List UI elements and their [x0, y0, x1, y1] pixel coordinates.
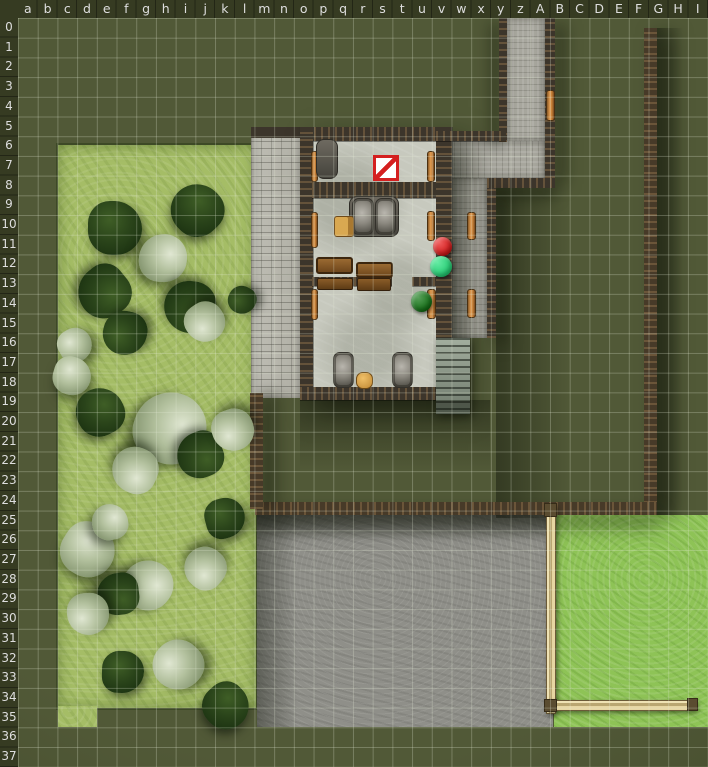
col-header-w: w: [451, 0, 471, 18]
row-header-27: 27: [0, 550, 18, 570]
col-header-e: e: [97, 0, 117, 18]
row-header-36: 36: [0, 727, 18, 747]
barrel: [375, 198, 396, 235]
fence-post: [544, 699, 557, 712]
row-header-12: 12: [0, 254, 18, 274]
col-header-p: p: [314, 0, 334, 18]
vtt-map-stage: abcdefghijklmnopqrstuvwxyzABCDEFGHI 0123…: [0, 0, 708, 767]
col-header-x: x: [471, 0, 491, 18]
map-canvas[interactable]: [18, 18, 708, 767]
column-header-bar: abcdefghijklmnopqrstuvwxyzABCDEFGHI: [18, 0, 708, 18]
paddock-fence-west: [546, 505, 556, 714]
row-header-0: 0: [0, 18, 18, 38]
tbench: [357, 278, 391, 291]
row-header-24: 24: [0, 491, 18, 511]
col-header-j: j: [195, 0, 215, 18]
row-header-17: 17: [0, 353, 18, 373]
col-header-A: A: [530, 0, 550, 18]
col-header-n: n: [274, 0, 294, 18]
row-header-18: 18: [0, 373, 18, 393]
row-header-5: 5: [0, 117, 18, 137]
west-boundary-wall: [250, 393, 263, 509]
north-path: [507, 18, 545, 141]
row-header-23: 23: [0, 471, 18, 491]
table: [316, 257, 353, 274]
col-header-t: t: [392, 0, 412, 18]
row-header-22: 22: [0, 451, 18, 471]
row-header-37: 37: [0, 747, 18, 767]
col-header-H: H: [668, 0, 688, 18]
row-header-31: 31: [0, 629, 18, 649]
bench: [467, 212, 476, 240]
stone-stairs: [436, 338, 470, 414]
row-header-21: 21: [0, 432, 18, 452]
row-header-35: 35: [0, 708, 18, 728]
col-header-d: d: [77, 0, 97, 18]
fence-post: [687, 698, 698, 711]
row-header-33: 33: [0, 668, 18, 688]
row-header-bar: 0123456789101112131415161718192021222324…: [0, 18, 18, 767]
row-header-25: 25: [0, 511, 18, 531]
east-boundary-wall: [644, 28, 657, 510]
barrel: [352, 198, 374, 235]
red-round-token[interactable]: [433, 237, 452, 256]
row-header-2: 2: [0, 57, 18, 77]
chair: [334, 216, 354, 237]
grass-field-notch: [58, 706, 97, 727]
row-header-14: 14: [0, 294, 18, 314]
col-header-h: h: [156, 0, 176, 18]
link-path: [436, 141, 545, 178]
row-header-34: 34: [0, 688, 18, 708]
green-round-token[interactable]: [430, 256, 452, 277]
barrel: [333, 352, 354, 388]
row-header-26: 26: [0, 530, 18, 550]
col-header-o: o: [294, 0, 314, 18]
col-header-l: l: [235, 0, 255, 18]
row-header-6: 6: [0, 136, 18, 156]
hazard-marker-token[interactable]: [373, 155, 399, 181]
row-header-29: 29: [0, 589, 18, 609]
counter: [316, 139, 338, 179]
col-header-b: b: [38, 0, 58, 18]
col-header-G: G: [649, 0, 669, 18]
bench: [546, 90, 555, 121]
row-header-4: 4: [0, 97, 18, 117]
row-header-8: 8: [0, 176, 18, 196]
path-wall-north: [436, 131, 506, 141]
table: [356, 262, 393, 278]
row-header-10: 10: [0, 215, 18, 235]
col-header-f: f: [117, 0, 137, 18]
col-header-u: u: [412, 0, 432, 18]
yard-shadow: [496, 178, 616, 518]
col-header-i: i: [176, 0, 196, 18]
paddock-grass: [554, 515, 708, 727]
col-header-E: E: [609, 0, 629, 18]
dark-tree: [88, 201, 142, 255]
row-header-15: 15: [0, 314, 18, 334]
fence-post: [544, 503, 557, 517]
col-header-z: z: [511, 0, 531, 18]
row-header-28: 28: [0, 570, 18, 590]
col-header-y: y: [491, 0, 511, 18]
row-header-7: 7: [0, 156, 18, 176]
tbench: [317, 278, 353, 290]
col-header-D: D: [589, 0, 609, 18]
east-path-wall: [487, 188, 496, 338]
col-header-r: r: [353, 0, 373, 18]
col-header-c: c: [57, 0, 77, 18]
paddock-fence-south: [546, 700, 696, 711]
bench: [427, 151, 435, 182]
col-header-m: m: [254, 0, 274, 18]
tavern-divider-2b: [412, 277, 436, 286]
dark-green-round-token[interactable]: [411, 291, 432, 312]
bench: [467, 289, 476, 318]
bench: [427, 211, 435, 241]
col-header-k: k: [215, 0, 235, 18]
col-header-a: a: [18, 0, 38, 18]
col-header-F: F: [629, 0, 649, 18]
row-header-32: 32: [0, 649, 18, 669]
gray-courtyard: [257, 515, 553, 727]
row-header-20: 20: [0, 412, 18, 432]
grid-corner: [0, 0, 18, 18]
bench: [311, 289, 318, 320]
col-header-I: I: [688, 0, 708, 18]
tavern-wall-south: [300, 387, 440, 400]
row-header-16: 16: [0, 333, 18, 353]
row-header-30: 30: [0, 609, 18, 629]
row-header-3: 3: [0, 77, 18, 97]
east-wall-shadow: [657, 28, 683, 515]
col-header-s: s: [373, 0, 393, 18]
col-header-v: v: [432, 0, 452, 18]
col-header-B: B: [550, 0, 570, 18]
path-wall-west: [499, 18, 507, 142]
col-header-g: g: [136, 0, 156, 18]
col-header-q: q: [333, 0, 353, 18]
row-header-13: 13: [0, 274, 18, 294]
row-header-1: 1: [0, 38, 18, 58]
stool: [356, 372, 373, 389]
building-south-shadow: [300, 400, 490, 500]
row-header-19: 19: [0, 392, 18, 412]
barrel: [392, 352, 413, 388]
south-boundary-wall: [255, 502, 657, 515]
path-wall-south: [487, 178, 555, 188]
col-header-C: C: [570, 0, 590, 18]
row-header-11: 11: [0, 235, 18, 255]
row-header-9: 9: [0, 195, 18, 215]
bench: [311, 212, 318, 248]
